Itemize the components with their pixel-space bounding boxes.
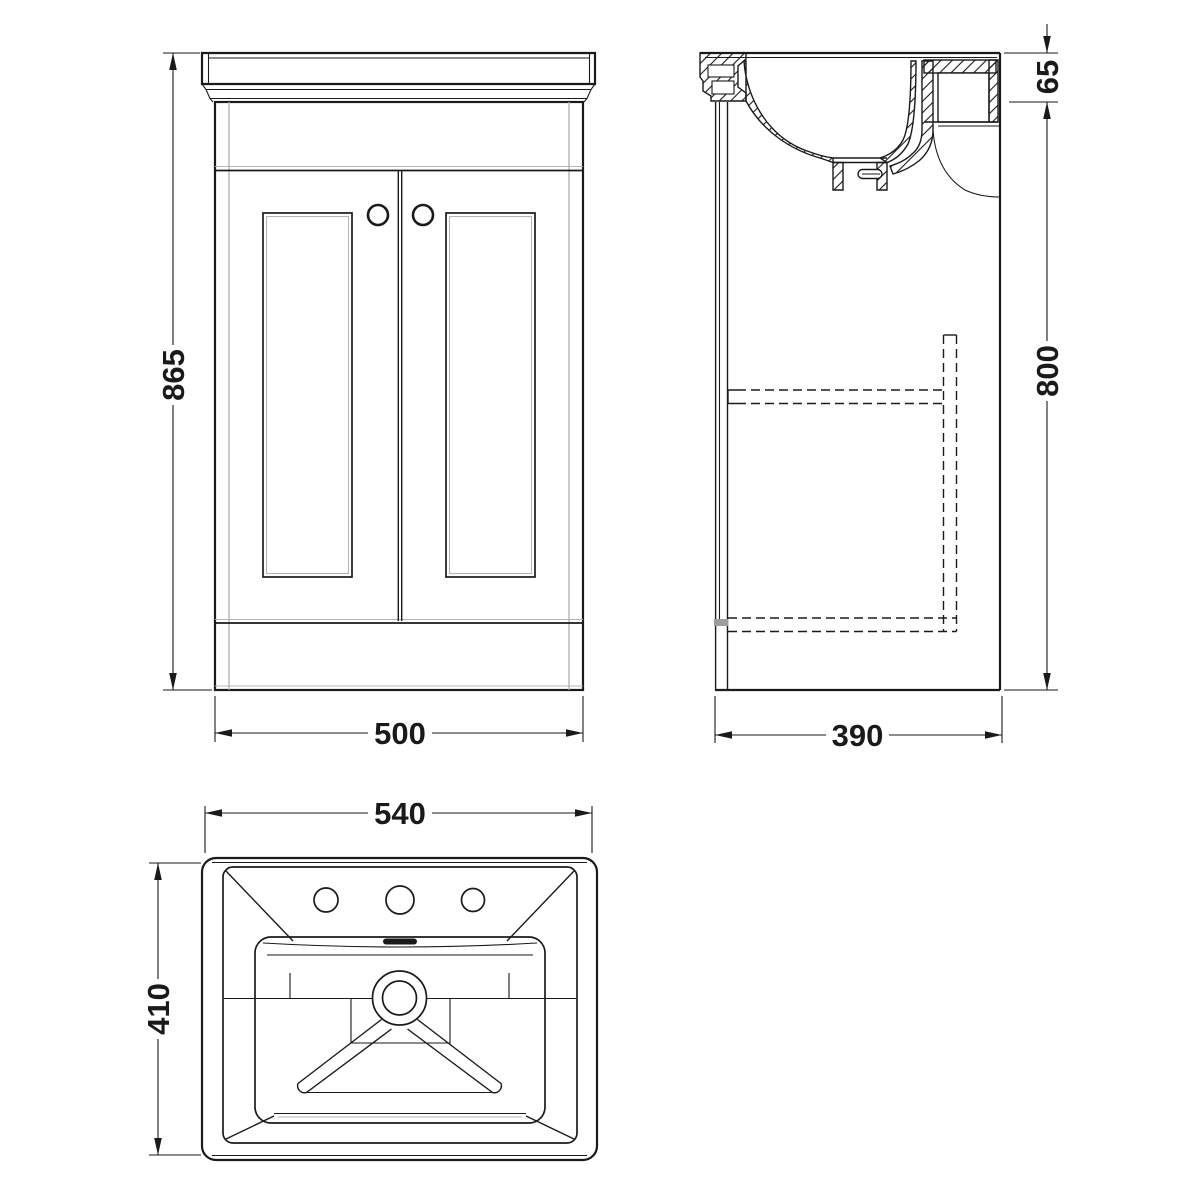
dimension-side-depth-polygon — [985, 731, 1002, 739]
dimension-basin-rim-height-polygon — [1043, 36, 1051, 53]
left-door-panel — [263, 213, 352, 577]
bowl-wall-right — [880, 61, 916, 163]
drain-inner-circle — [383, 981, 417, 1015]
dimension-side-height-polygon — [1043, 673, 1051, 690]
rear-tap-deck — [924, 60, 1000, 126]
front-cornice-moulding-path — [202, 84, 213, 102]
basin-rim-height-label: 65 — [1030, 60, 1065, 94]
basin-rear-underside-curve — [933, 130, 1000, 197]
plan-corner-breaks-line — [226, 871, 293, 941]
dimension-front-width: 500 — [215, 696, 583, 751]
bowl-slope-edge-left — [298, 1020, 392, 1093]
side-basin-section-rect — [712, 81, 734, 94]
side-basin-section-rect — [708, 65, 734, 77]
dimension-plan-width-polygon — [575, 809, 592, 817]
dimension-front-width-polygon — [566, 729, 583, 737]
front-cabinet-carcass-rect — [215, 102, 583, 690]
dimension-side-depth: 390 — [715, 696, 1002, 753]
plan-width-label: 540 — [374, 796, 426, 831]
vanity-technical-drawing: 865 500 65 800 — [0, 0, 1200, 1200]
dimension-plan-depth-polygon — [154, 1138, 162, 1155]
bowl-slope-edge-right — [408, 1020, 502, 1093]
front-doors — [263, 171, 535, 622]
side-height-label: 800 — [1030, 345, 1065, 397]
plan-corner-breaks-line — [226, 1116, 274, 1139]
front-cornice-moulding-path — [584, 84, 595, 102]
front-doors-rect — [450, 217, 532, 574]
waste-outlet-path — [833, 163, 843, 191]
bowl-wall-left — [744, 61, 833, 163]
technical-drawing-page: 865 500 65 800 — [0, 0, 1200, 1200]
side-hidden-shelf-lines-path — [728, 390, 737, 404]
side-section-view — [700, 53, 1000, 690]
bowl-rim — [255, 937, 545, 1123]
plan-tap-holes — [314, 886, 485, 914]
waste-outlet — [833, 158, 887, 190]
tap-hole-left — [314, 888, 338, 912]
dimension-basin-rim-height: 65 — [1004, 24, 1065, 119]
front-doors-rect — [267, 217, 349, 574]
side-hidden-shelf-lines — [728, 335, 957, 632]
tap-hole-right — [462, 889, 485, 912]
front-width-label: 500 — [374, 716, 426, 751]
dimension-front-height-polygon — [169, 53, 177, 70]
dimension-side-height: 800 — [1004, 102, 1065, 690]
dimension-plan-width: 540 — [205, 796, 592, 853]
front-elevation-view — [202, 53, 595, 690]
dimension-front-height: 865 — [156, 53, 212, 690]
overflow-slot — [383, 939, 417, 945]
right-door-knob — [413, 205, 433, 225]
front-height-label: 865 — [156, 349, 191, 401]
front-basin-rim — [202, 53, 595, 84]
dimension-plan-width-polygon — [205, 809, 222, 817]
rear-tap-deck-rect — [924, 60, 996, 73]
plan-corner-breaks-line — [526, 1116, 574, 1139]
plan-depth-label: 410 — [141, 983, 176, 1035]
plan-bowl — [224, 937, 576, 1123]
dimension-side-depth-polygon — [715, 731, 732, 739]
dimension-plan-depth: 410 — [141, 863, 201, 1155]
side-depth-label: 390 — [832, 718, 884, 753]
dimension-front-width-polygon — [215, 729, 232, 737]
left-door-knob — [368, 205, 388, 225]
dimension-front-height-polygon — [169, 673, 177, 690]
side-door-bottom-edge — [714, 619, 728, 626]
tap-hole-centre — [386, 886, 414, 914]
rear-tap-deck-rect — [989, 60, 998, 122]
front-cabinet-carcass — [215, 102, 583, 690]
front-cornice-moulding — [202, 84, 595, 102]
basin-plan-view — [202, 858, 597, 1160]
dimension-plan-depth-polygon — [154, 863, 162, 880]
right-door-panel — [446, 213, 535, 577]
dimensions: 865 500 65 800 — [141, 24, 1065, 1155]
side-basin-section — [700, 53, 1000, 197]
plan-corner-breaks-line — [507, 871, 574, 941]
deck-void — [938, 73, 989, 122]
